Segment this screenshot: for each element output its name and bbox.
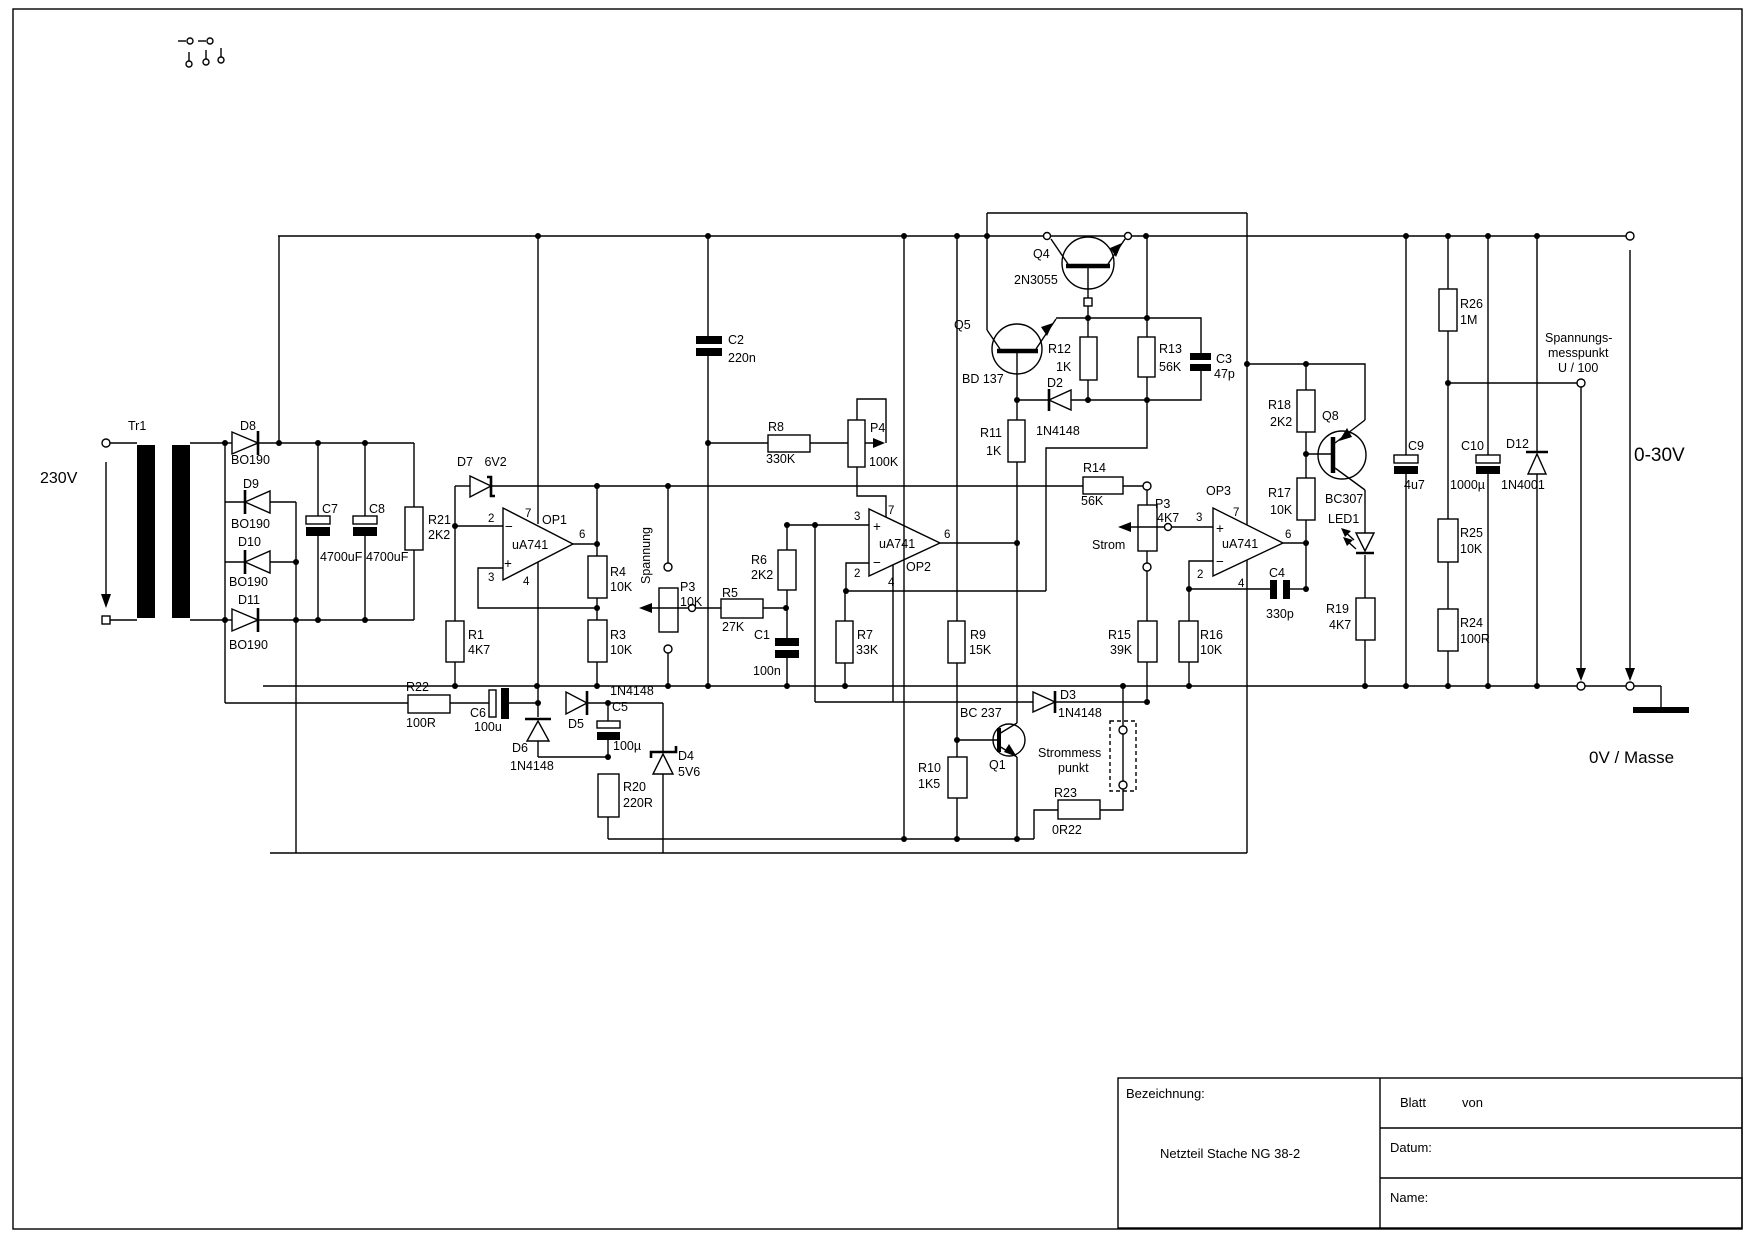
label-p3b-value: 4K7	[1157, 511, 1179, 525]
label-c7: C7	[322, 502, 338, 516]
diode-d11-icon	[232, 609, 258, 631]
label-d5: D5	[568, 717, 584, 731]
titleblock-bezeichnung: Bezeichnung:	[1126, 1086, 1205, 1101]
label-r19-value: 4K7	[1329, 618, 1351, 632]
label-d4: D4	[678, 749, 694, 763]
current-measure-point	[1100, 686, 1136, 810]
label-r23-value: 0R22	[1052, 823, 1082, 837]
titleblock-title: Netzteil Stache NG 38-2	[1160, 1146, 1300, 1161]
resistor-r21	[405, 443, 423, 620]
label-c1-value: 100n	[753, 664, 781, 678]
mains-terminal-top	[102, 439, 110, 447]
p4-wiper-arrow-icon	[873, 438, 885, 448]
label-r25-value: 10K	[1460, 542, 1483, 556]
op2-plus: +	[873, 519, 881, 534]
diode-d5	[566, 691, 608, 715]
label-d4-value: 5V6	[678, 765, 700, 779]
label-op1-ic: uA741	[512, 538, 548, 552]
zener-d7	[455, 476, 1083, 497]
op2-minus: −	[873, 555, 881, 570]
resistor-r24	[1438, 609, 1458, 686]
op2-pin6: 6	[944, 529, 950, 541]
mains-terminal-bottom	[102, 616, 110, 624]
label-c2: C2	[728, 333, 744, 347]
resistor-r12	[1080, 337, 1097, 400]
label-c5: C5	[612, 700, 628, 714]
label-r26-value: 1M	[1460, 313, 1477, 327]
label-strom: Strom	[1092, 538, 1125, 552]
label-spannung: Spannung	[639, 527, 653, 584]
label-c7-value: 4700uF	[320, 550, 363, 564]
op2-pin3: 3	[854, 511, 860, 523]
resistor-r17	[1297, 454, 1315, 543]
cap-c3	[1147, 318, 1211, 400]
resistor-r26	[1439, 236, 1457, 519]
op1-pin2: 2	[488, 513, 494, 525]
resistor-r10	[948, 740, 967, 839]
label-r4-value: 10K	[610, 580, 633, 594]
label-r3: R3	[610, 628, 626, 642]
label-op1: OP1	[542, 513, 567, 527]
label-p4-value: 100K	[869, 455, 899, 469]
label-c3-value: 47p	[1214, 367, 1235, 381]
op1-minus: −	[505, 519, 513, 534]
label-r1: R1	[468, 628, 484, 642]
label-r21: R21	[428, 513, 451, 527]
label-d11-value: BO190	[229, 638, 268, 652]
label-d5-value: 1N4148	[610, 684, 654, 698]
label-230v: 230V	[40, 470, 78, 487]
label-messpunkt-2: messpunkt	[1548, 346, 1609, 360]
label-r7-value: 33K	[856, 643, 879, 657]
sense-arrow-icon	[1576, 668, 1586, 681]
resistor-r9	[948, 236, 965, 740]
led-led1	[1341, 528, 1374, 598]
label-d3: D3	[1060, 688, 1076, 702]
label-r13: R13	[1159, 342, 1182, 356]
label-c9: C9	[1408, 439, 1424, 453]
label-r23: R23	[1054, 786, 1077, 800]
resistor-r14	[1083, 477, 1143, 494]
label-r9-value: 15K	[969, 643, 992, 657]
cap-c8	[353, 443, 377, 620]
label-c9-value: 4u7	[1404, 478, 1425, 492]
primary-winding	[137, 445, 155, 618]
label-r17: R17	[1268, 486, 1291, 500]
op3-pin4: 4	[1238, 578, 1245, 590]
titleblock-datum: Datum:	[1390, 1140, 1432, 1155]
resistor-r22	[225, 695, 489, 713]
label-d10: D10	[238, 535, 261, 549]
label-r15: R15	[1108, 628, 1131, 642]
label-d6: D6	[512, 741, 528, 755]
label-r19: R19	[1326, 602, 1349, 616]
label-q5: Q5	[954, 318, 971, 332]
label-r22-value: 100R	[406, 716, 436, 730]
label-tr1: Tr1	[128, 419, 146, 433]
mains-arrow-icon	[101, 594, 111, 608]
op2-pin7: 7	[888, 505, 894, 517]
transformer-tr1	[101, 439, 225, 624]
label-r4: R4	[610, 565, 626, 579]
resistor-r16	[1179, 589, 1198, 686]
label-d10-value: BO190	[229, 575, 268, 589]
label-messpunkt-1: Spannungs-	[1545, 331, 1612, 345]
titleblock-von: von	[1462, 1095, 1483, 1110]
label-p3a: P3	[680, 580, 695, 594]
cap-c6	[489, 688, 538, 719]
label-op2: OP2	[906, 560, 931, 574]
p3b-wiper-arrow-icon	[1118, 522, 1131, 532]
resistor-r19	[1356, 598, 1375, 686]
label-r20: R20	[623, 780, 646, 794]
label-r3-value: 10K	[610, 643, 633, 657]
label-r10-value: 1K5	[918, 777, 940, 791]
diode-d10-icon	[245, 551, 270, 573]
label-r20-value: 220R	[623, 796, 653, 810]
transistor-q5	[987, 236, 1147, 400]
label-d8: D8	[240, 419, 256, 433]
resistor-r3	[588, 620, 607, 686]
titleblock-blatt: Blatt	[1400, 1095, 1426, 1110]
op3-minus: −	[1216, 554, 1224, 569]
label-r9: R9	[970, 628, 986, 642]
label-r22: R22	[406, 680, 429, 694]
diode-d12	[1526, 236, 1548, 686]
label-d3-value: 1N4148	[1058, 706, 1102, 720]
label-p3b: P3	[1155, 497, 1170, 511]
label-p3a-value: 10K	[680, 595, 703, 609]
label-r16-value: 10K	[1200, 643, 1223, 657]
label-op3: OP3	[1206, 484, 1231, 498]
label-r24: R24	[1460, 616, 1483, 630]
label-r5: R5	[722, 586, 738, 600]
label-c8-value: 4700uF	[366, 550, 409, 564]
label-r6-value: 2K2	[751, 568, 773, 582]
label-led1: LED1	[1328, 512, 1359, 526]
label-masse: 0V / Masse	[1589, 748, 1674, 767]
label-r14: R14	[1083, 461, 1106, 475]
resistor-r20	[598, 774, 619, 839]
op3-pin3: 3	[1196, 512, 1202, 524]
schematic-page: Tr1 230V D8 BO190 D9 BO190 D10 BO190 D11…	[0, 0, 1754, 1240]
diode-d2	[1017, 389, 1147, 411]
resistor-r5	[721, 599, 786, 618]
label-d12: D12	[1506, 437, 1529, 451]
label-q5-type: BD 137	[962, 372, 1004, 386]
op1-pin3: 3	[488, 572, 494, 584]
op3-plus: +	[1216, 521, 1224, 536]
label-q1-type: BC 237	[960, 706, 1002, 720]
q4-emitter-arrow-icon	[1110, 243, 1122, 257]
label-strommess-2: punkt	[1058, 761, 1089, 775]
label-r17-value: 10K	[1270, 503, 1293, 517]
label-d11: D11	[238, 593, 260, 607]
label-r6: R6	[751, 553, 767, 567]
label-r26: R26	[1460, 297, 1483, 311]
secondary-winding	[172, 445, 190, 618]
label-messpunkt-3: U / 100	[1558, 361, 1598, 375]
label-d9: D9	[243, 477, 259, 491]
cap-c2	[696, 236, 722, 686]
label-r13-value: 56K	[1159, 360, 1182, 374]
schematic-canvas: Tr1 230V D8 BO190 D9 BO190 D10 BO190 D11…	[0, 0, 1754, 1240]
op1-pin7: 7	[525, 508, 531, 520]
label-0-30v: 0-30V	[1634, 445, 1685, 466]
label-q1: Q1	[989, 758, 1006, 772]
label-c6-value: 100u	[474, 720, 502, 734]
op2-pin2: 2	[854, 568, 860, 580]
label-r1-value: 4K7	[468, 643, 490, 657]
cap-c9	[1394, 236, 1418, 686]
label-q8: Q8	[1322, 409, 1339, 423]
label-r11-value: 1K	[986, 444, 1002, 458]
cap-c7	[306, 443, 330, 620]
q5-emitter-arrow-icon	[1041, 323, 1053, 336]
op1-plus: +	[504, 556, 512, 571]
label-r8-value: 330K	[766, 452, 796, 466]
label-r11: R11	[980, 426, 1002, 440]
label-r16: R16	[1200, 628, 1223, 642]
label-d6-value: 1N4148	[510, 759, 554, 773]
label-c2-value: 220n	[728, 351, 756, 365]
label-r24-value: 100R	[1460, 632, 1490, 646]
opamp-op3	[1189, 508, 1306, 853]
label-r18: R18	[1268, 398, 1291, 412]
label-c10: C10	[1461, 439, 1484, 453]
resistor-r18	[1247, 364, 1365, 454]
label-r12: R12	[1048, 342, 1071, 356]
label-c8: C8	[369, 502, 385, 516]
label-r12-value: 1K	[1056, 360, 1072, 374]
op1-pin4: 4	[523, 576, 530, 588]
resistor-r6	[778, 525, 796, 608]
label-strommess-1: Strommess	[1038, 746, 1101, 760]
label-c4: C4	[1269, 566, 1285, 580]
label-q8-type: BC307	[1325, 492, 1363, 506]
label-r8: R8	[768, 420, 784, 434]
output-arrow-icon	[1625, 668, 1635, 681]
resistor-r4	[588, 486, 607, 620]
label-r7: R7	[857, 628, 873, 642]
label-q4-type: 2N3055	[1014, 273, 1058, 287]
resistor-r25	[1438, 519, 1458, 609]
op3-pin7: 7	[1233, 507, 1239, 519]
label-c6: C6	[470, 706, 486, 720]
label-d9-value: BO190	[231, 517, 270, 531]
label-d12-value: 1N4001	[1501, 478, 1545, 492]
label-d8-value: BO190	[231, 453, 270, 467]
label-p4: P4	[870, 421, 885, 435]
resistor-r11	[1008, 400, 1025, 543]
resistor-r7	[836, 591, 853, 686]
label-c4-value: 330p	[1266, 607, 1294, 621]
diode-d9-icon	[245, 491, 270, 513]
resistor-r15	[1138, 621, 1157, 702]
label-d2: D2	[1047, 376, 1063, 390]
label-r10: R10	[918, 761, 941, 775]
titleblock-name: Name:	[1390, 1190, 1428, 1205]
label-q4: Q4	[1033, 247, 1050, 261]
label-c10-value: 1000µ	[1450, 478, 1485, 492]
label-d2-value: 1N4148	[1036, 424, 1080, 438]
label-r14-value: 56K	[1081, 494, 1104, 508]
q8-emitter-arrow-icon	[1339, 428, 1352, 441]
op3-pin2: 2	[1197, 569, 1203, 581]
op3-pin6: 6	[1285, 529, 1291, 541]
op2-pin4: 4	[888, 577, 895, 589]
label-d7: D7 6V2	[457, 455, 507, 469]
ground-symbol-icon	[1633, 686, 1689, 710]
diode-d8-icon	[232, 432, 258, 454]
label-r18-value: 2K2	[1270, 415, 1292, 429]
connector-legend-icon	[178, 38, 224, 67]
label-op2-ic: uA741	[879, 537, 915, 551]
label-c5-value: 100µ	[613, 739, 641, 753]
label-op3-ic: uA741	[1222, 537, 1258, 551]
label-r5-value: 27K	[722, 620, 745, 634]
label-r21-value: 2K2	[428, 528, 450, 542]
op1-pin6: 6	[579, 529, 585, 541]
label-r15-value: 39K	[1110, 643, 1133, 657]
label-c3: C3	[1216, 352, 1232, 366]
p3a-wiper-arrow-icon	[639, 603, 652, 613]
label-c1: C1	[754, 628, 770, 642]
label-r25: R25	[1460, 526, 1483, 540]
